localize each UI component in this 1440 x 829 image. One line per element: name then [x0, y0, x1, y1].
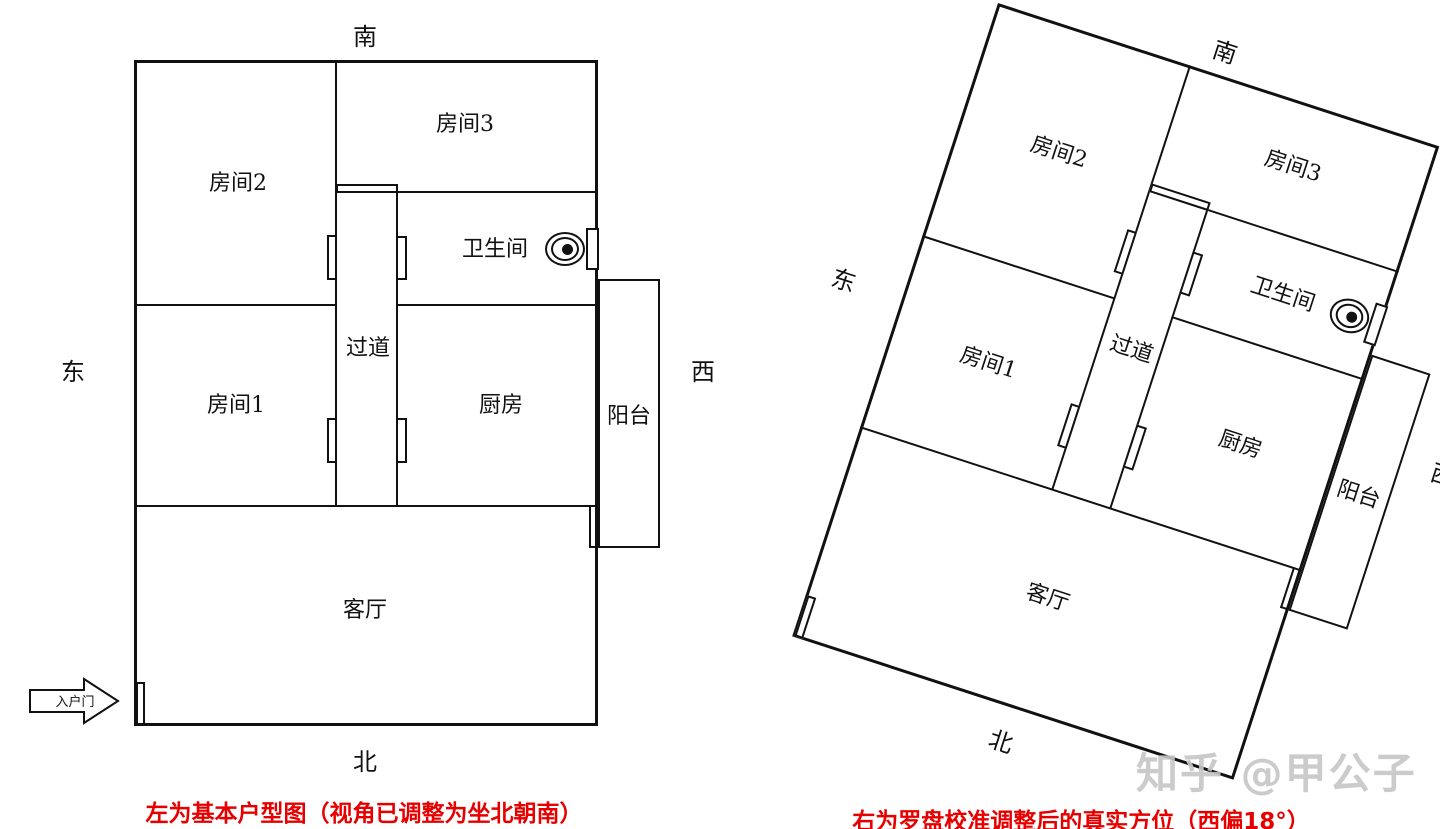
- compass-north: 北: [339, 748, 391, 776]
- watermark: 知乎 @甲公子: [1136, 753, 1417, 795]
- wall-bathroom-bottom: [396, 304, 598, 306]
- living-room-label: 客厅: [305, 597, 425, 625]
- compass-east: 东: [815, 260, 873, 303]
- compass-west: 西: [1414, 454, 1440, 497]
- room2-label: 房间2: [178, 170, 298, 198]
- caption-left: 左为基本户型图（视角已调整为坐北朝南）: [94, 794, 634, 828]
- room3-label: 房间3: [405, 111, 525, 139]
- door-frame-upper-right: [396, 236, 407, 280]
- wall-livingroom-top: [134, 505, 598, 507]
- floor-plan: 房间2 房间3 卫生间 过道 房间1 厨房 阳台 客厅 南 北 东 西: [134, 60, 660, 726]
- stage: 房间2 房间3 卫生间 过道 房间1 厨房 阳台 客厅 南 北 东 西: [0, 0, 1440, 829]
- corridor-label: 过道: [308, 335, 428, 363]
- entry-door-label: 入户门: [55, 694, 94, 710]
- toilet-tank-icon: [586, 228, 599, 270]
- door-frame-upper-left: [327, 235, 337, 280]
- wall-room2-bottom: [134, 304, 336, 306]
- bathroom-label: 卫生间: [435, 236, 555, 264]
- floor-plan-rotated: 房间2 房间3 卫生间 过道 房间1 厨房 阳台 客厅 南 北 东 西: [792, 3, 1440, 799]
- balcony-label: 阳台: [599, 403, 659, 431]
- outer-wall: [792, 3, 1439, 780]
- wall-balcony-notch: [589, 505, 591, 548]
- caption-right: 右为罗盘校准调整后的真实方位（西偏18°）: [811, 802, 1351, 829]
- compass-south: 南: [339, 23, 391, 51]
- door-frame-lower-left: [327, 418, 337, 463]
- compass-south: 南: [1196, 31, 1254, 74]
- door-frame-lower-right: [396, 418, 407, 463]
- room1-label: 房间1: [176, 392, 296, 420]
- entry-door-notch: [136, 682, 145, 725]
- corridor-top-cap: [336, 184, 398, 193]
- entry-door-arrow: 入户门: [28, 676, 120, 726]
- compass-north: 北: [972, 721, 1030, 764]
- kitchen-label: 厨房: [441, 392, 561, 420]
- compass-west: 西: [677, 358, 729, 386]
- toilet-drain-icon: [562, 244, 573, 255]
- compass-east: 东: [47, 358, 99, 386]
